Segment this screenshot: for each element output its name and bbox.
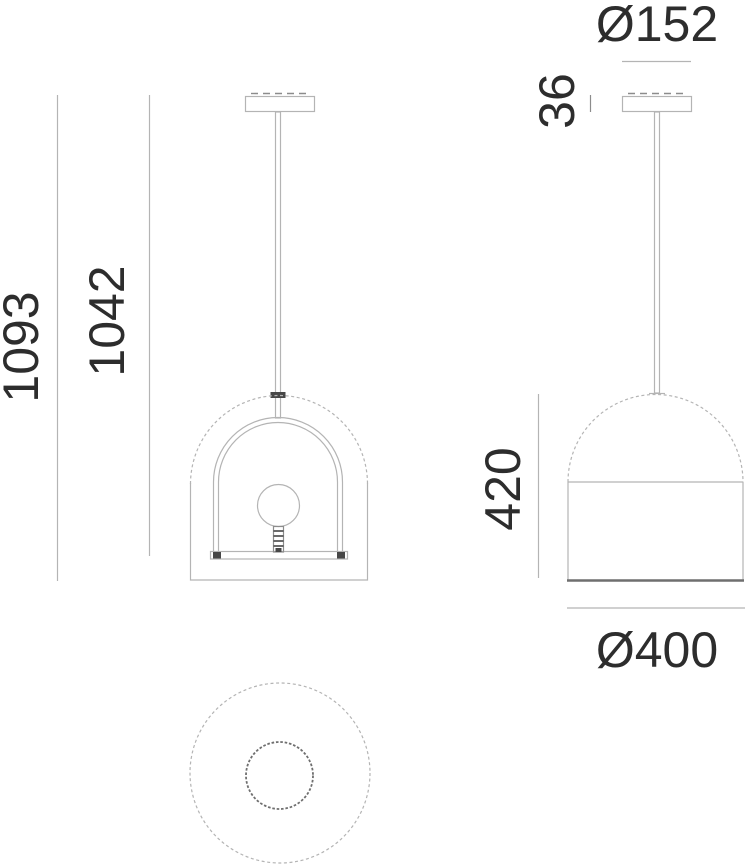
dim-label-shade-diameter: Ø400 [596, 625, 718, 675]
front-bulb [258, 485, 300, 527]
front-socket [274, 527, 284, 553]
pendant-lamp-drawing [0, 0, 748, 867]
technical-drawing-canvas: 1093 1042 Ø152 36 420 Ø400 [0, 0, 748, 867]
front-stem-collar [271, 392, 286, 398]
dim-label-canopy-diameter: Ø152 [596, 0, 718, 49]
top-view-inner-circle [246, 742, 313, 809]
front-socket-cap [276, 548, 282, 552]
front-stem [276, 112, 281, 418]
front-view [191, 94, 368, 581]
side-view [539, 62, 746, 609]
side-shade-dome-arc [568, 394, 743, 482]
top-view [190, 683, 370, 863]
dim-label-overall-height: 1093 [0, 291, 46, 402]
front-bottom-bar [211, 552, 348, 560]
side-canopy [623, 97, 692, 112]
front-bar-endcap-left [213, 552, 221, 559]
top-view-shade-circle [190, 683, 370, 863]
dim-label-frame-height: 1042 [82, 265, 132, 376]
side-stem [655, 112, 660, 393]
dim-label-canopy-height: 36 [532, 73, 582, 129]
front-bar-endcap-right [337, 552, 345, 559]
dim-label-shade-height: 420 [478, 447, 528, 530]
front-canopy [246, 97, 315, 112]
